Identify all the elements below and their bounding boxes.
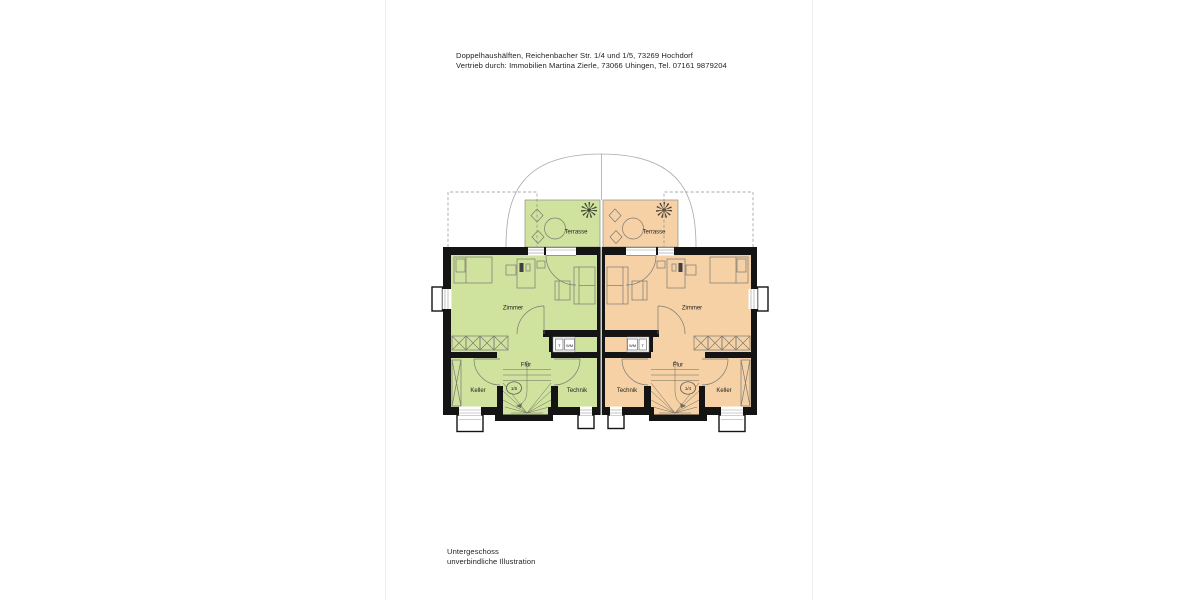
room-label-zimmer-left: Zimmer [503,306,523,312]
room-label-keller-right: Keller [716,388,731,394]
room-label-keller-left: Keller [470,388,485,394]
light-well [608,415,624,429]
light-well [758,287,769,311]
washer-label: WM [566,343,573,348]
house-number-left: 1/5 [511,386,518,391]
upper-floor-dashed-outline [448,192,753,247]
terrace-label-left: Terrasse [564,230,588,236]
appliance-nook-left: T WM [549,337,575,352]
room-label-flur-right: Flur [673,363,683,369]
room-label-zimmer-right: Zimmer [682,306,702,312]
room-label-technik-right: Technik [617,388,638,394]
light-well [457,415,483,432]
party-wall-gap [601,247,602,415]
appliance-nook-right: WM T [627,337,653,352]
house-number-right: 1/4 [685,386,692,391]
flyer-page: Doppelhaushälften, Reichenbacher Str. 1/… [0,0,1200,600]
light-well [578,415,594,429]
terrace-label-right: Terrasse [642,230,666,236]
terrace-right: Terrasse [603,200,678,247]
light-well [719,415,745,432]
room-label-technik-left: Technik [567,388,588,394]
room-label-flur-left: Flur [521,363,531,369]
terrace-left: Terrasse [525,200,600,247]
washer-label: WM [629,343,636,348]
light-well [432,287,443,311]
floor-plan-canvas: Terrasse Terrasse [0,0,1200,600]
